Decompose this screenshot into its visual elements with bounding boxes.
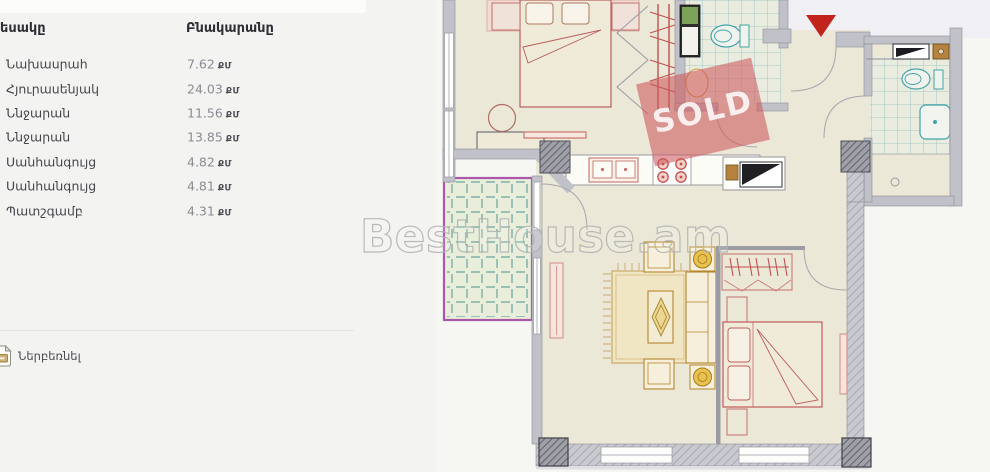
toilet-icon <box>902 69 930 89</box>
area-value: 4.82ՔՄ <box>187 154 232 169</box>
room-label: Սանհանգույց <box>6 179 96 194</box>
area-unit: ՔՄ <box>218 62 232 72</box>
area-value: 13.85ՔՄ <box>187 130 240 145</box>
bedroom2-wall <box>716 246 805 250</box>
room-label: Հյուրասենյակ <box>6 81 99 96</box>
apartment-details-page: Տեսակը Բնակարանը Նախասրահ 7.62ՔՄ Հյուրաս… <box>0 0 990 472</box>
balcony-door-leaf <box>534 182 540 230</box>
col-header-type: Տեսակը <box>0 21 46 36</box>
table-row: Նախասրահ 7.62ՔՄ <box>0 52 354 76</box>
room-label: Սանհանգույց <box>6 154 96 169</box>
file-download-icon <box>0 344 13 367</box>
nightstand <box>727 409 747 435</box>
area-number: 4.82 <box>187 154 215 169</box>
table-row: Սանհանգույց 4.81ՔՄ <box>0 174 354 198</box>
floorplan-image[interactable]: SOLD <box>436 0 990 472</box>
room-areas-table: Նախասրահ 7.62ՔՄ Հյուրասենյակ 24.03ՔՄ Ննջ… <box>0 52 354 223</box>
sofa <box>686 272 716 363</box>
bedroom2-wall <box>716 246 721 444</box>
nightstand <box>727 297 747 323</box>
table-header: Տեսակը Բնակարանը <box>0 21 354 37</box>
area-value: 4.31ՔՄ <box>187 203 232 218</box>
room-label: Ննջարան <box>6 105 70 120</box>
area-value: 7.62ՔՄ <box>187 57 232 72</box>
area-unit: ՔՄ <box>218 208 232 218</box>
table-row: Ննջարան 13.85ՔՄ <box>0 125 354 149</box>
area-number: 4.31 <box>187 203 215 218</box>
table-row: Սանհանգույց 4.82ՔՄ <box>0 150 354 174</box>
balcony <box>444 178 532 320</box>
area-number: 11.56 <box>187 105 223 120</box>
col-header-apartment: Բնակարանը <box>186 21 274 36</box>
area-number: 13.85 <box>187 130 223 145</box>
area-value: 4.81ՔՄ <box>187 179 232 194</box>
room-label: Նախասրահ <box>6 57 88 72</box>
armchair <box>644 359 674 389</box>
area-unit: ՔՄ <box>226 110 240 120</box>
room-label: Պատշգամբ <box>6 203 83 218</box>
radiator-icon <box>840 334 847 394</box>
nightstand <box>492 3 520 30</box>
area-value: 24.03ՔՄ <box>187 81 240 96</box>
table-row: Պատշգամբ 4.31ՔՄ <box>0 198 354 222</box>
area-unit: ՔՄ <box>226 86 240 96</box>
toilet-icon <box>711 25 741 47</box>
area-number: 24.03 <box>187 81 223 96</box>
download-link[interactable]: Ներբեռնել <box>0 344 81 367</box>
area-unit: ՔՄ <box>226 135 240 145</box>
download-label: Ներբեռնել <box>18 349 81 363</box>
area-unit: ՔՄ <box>218 159 232 169</box>
area-unit: ՔՄ <box>218 184 232 194</box>
area-value: 11.56ՔՄ <box>187 105 240 120</box>
panel-divider <box>0 330 354 331</box>
armchair <box>644 242 674 272</box>
area-number: 4.81 <box>187 179 215 194</box>
table-row: Ննջարան 11.56ՔՄ <box>0 101 354 125</box>
room-label: Ննջարան <box>6 130 70 145</box>
area-number: 7.62 <box>187 57 215 72</box>
room-areas-panel: Տեսակը Բնակարանը Նախասրահ 7.62ՔՄ Հյուրաս… <box>0 0 436 472</box>
table-row: Հյուրասենյակ 24.03ՔՄ <box>0 76 354 100</box>
